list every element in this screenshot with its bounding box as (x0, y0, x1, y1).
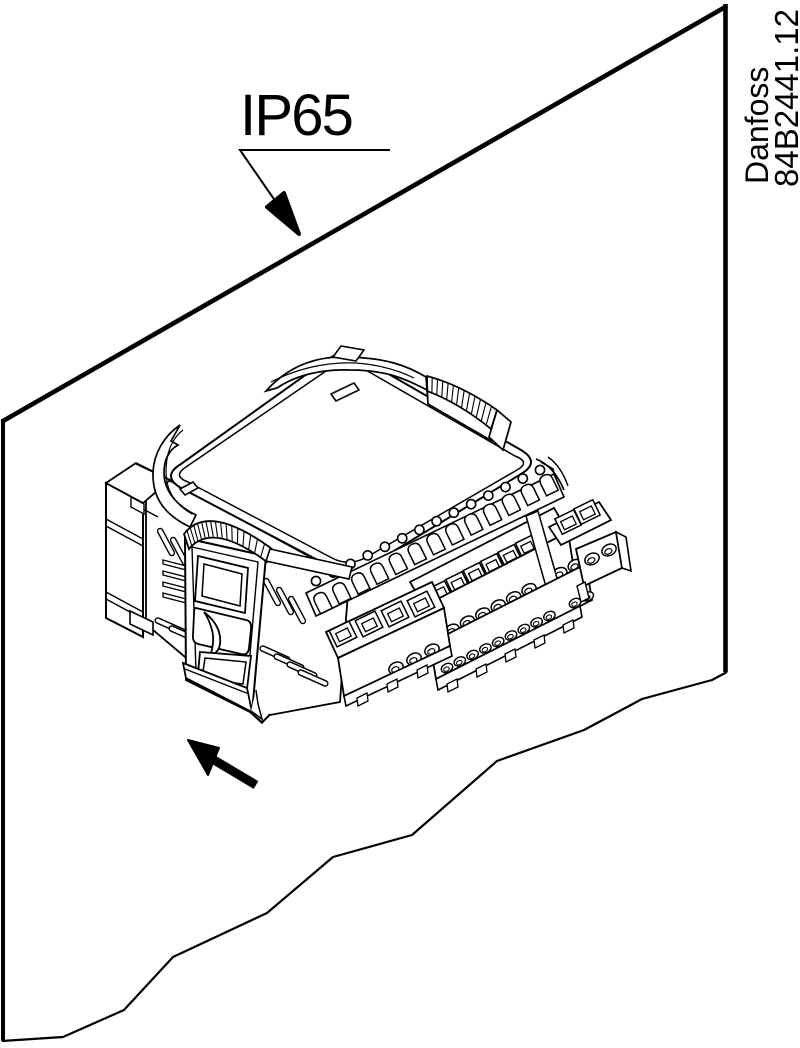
svg-text:IP65: IP65 (240, 83, 352, 148)
svg-text:84B2441.12: 84B2441.12 (768, 9, 800, 187)
